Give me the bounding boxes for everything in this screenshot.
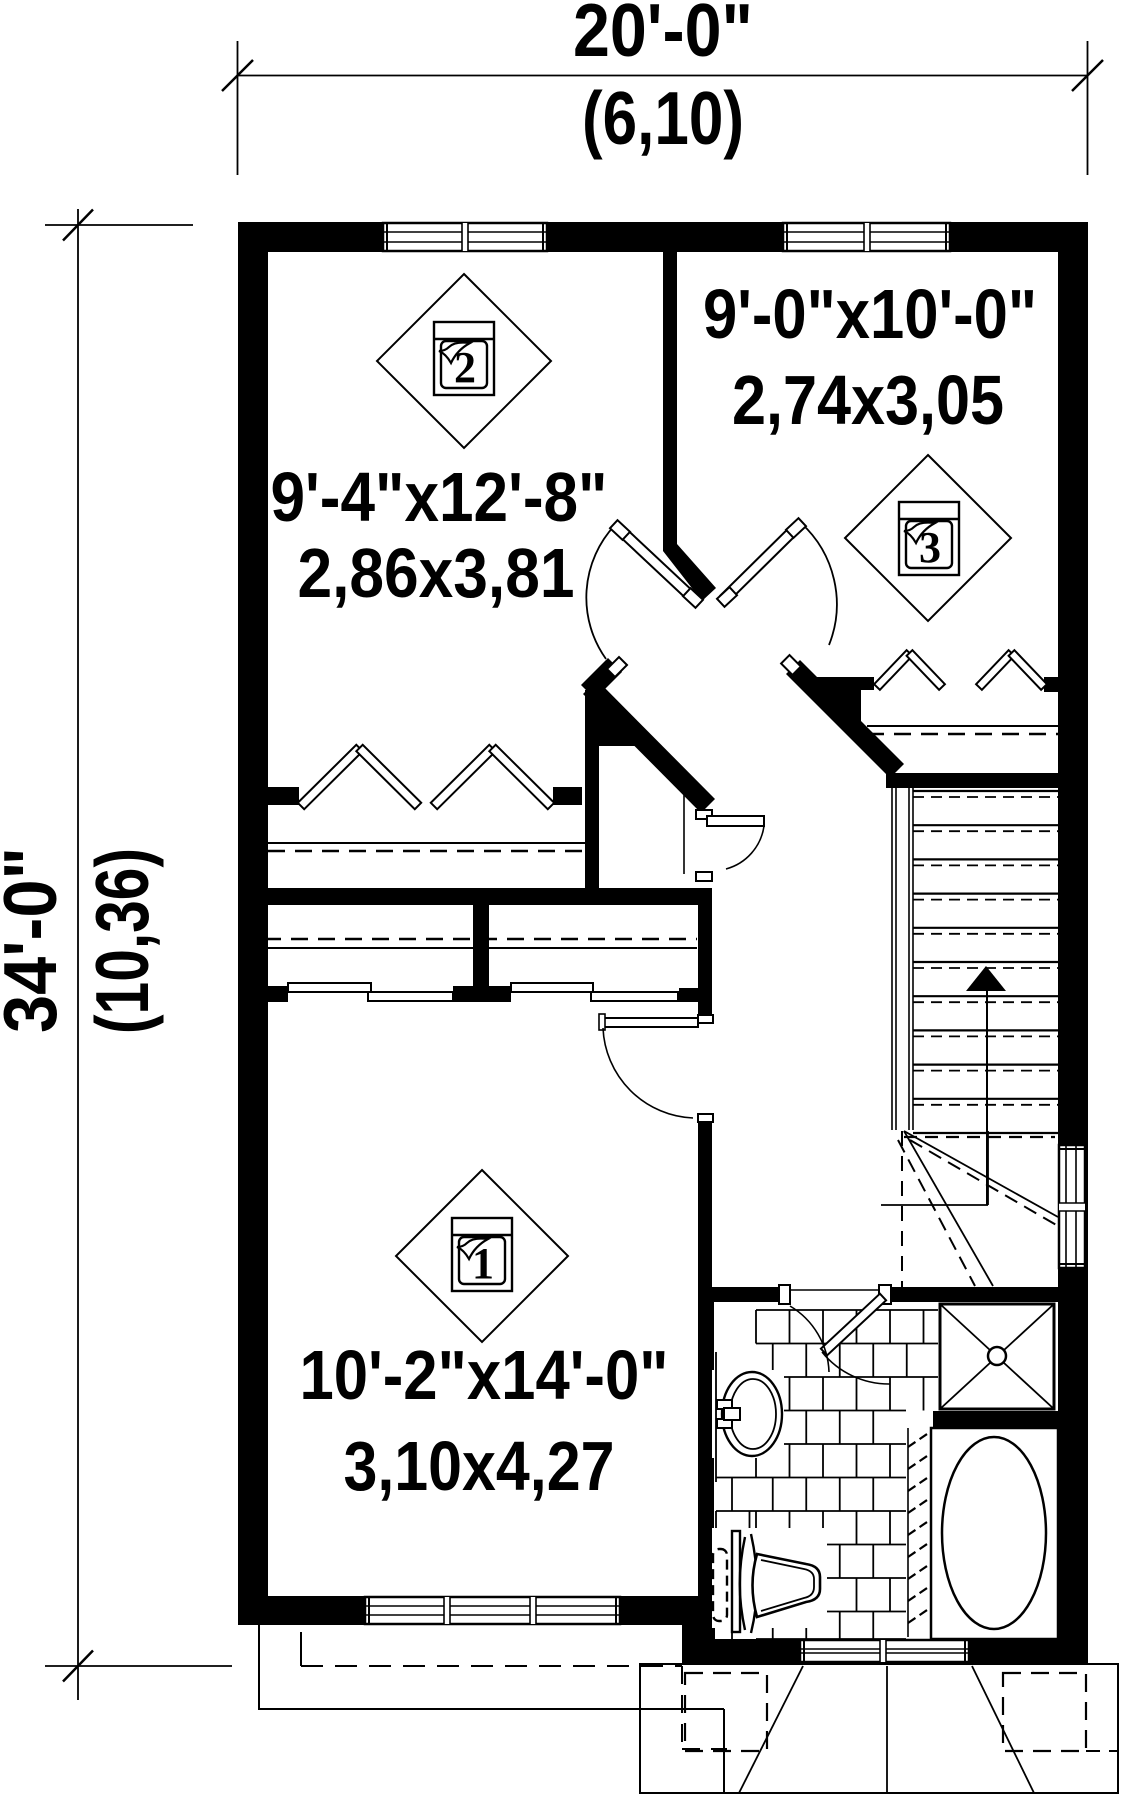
svg-text:1: 1 xyxy=(472,1239,494,1288)
svg-text:2,74x3,05: 2,74x3,05 xyxy=(732,361,1004,439)
svg-text:3: 3 xyxy=(919,523,941,572)
svg-text:3,10x4,27: 3,10x4,27 xyxy=(344,1427,615,1505)
svg-text:10'-2"x14'-0": 10'-2"x14'-0" xyxy=(300,1336,669,1414)
svg-text:9'-0"x10'-0": 9'-0"x10'-0" xyxy=(703,275,1037,353)
svg-text:20'-0": 20'-0" xyxy=(573,0,753,72)
svg-text:(10,36): (10,36) xyxy=(80,848,164,1034)
svg-text:2: 2 xyxy=(454,343,476,392)
svg-text:(6,10): (6,10) xyxy=(582,76,744,160)
svg-text:2,86x3,81: 2,86x3,81 xyxy=(298,534,575,612)
svg-text:9'-4"x12'-8": 9'-4"x12'-8" xyxy=(271,458,608,536)
svg-text:34'-0": 34'-0" xyxy=(0,847,72,1033)
